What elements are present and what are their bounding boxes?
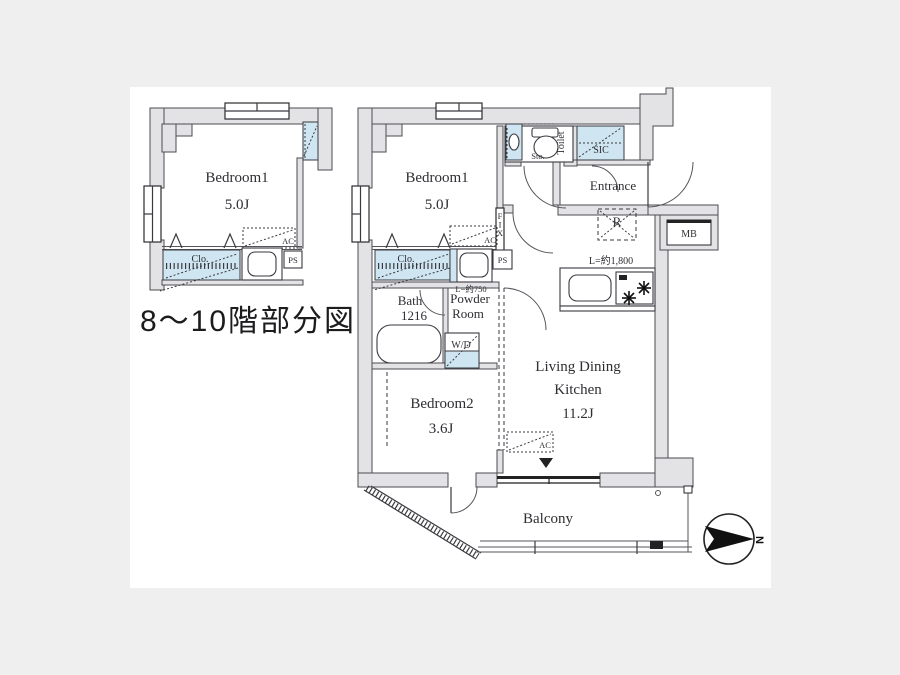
bath-size-label: 1216 [401, 308, 428, 323]
north-label: N [753, 536, 765, 544]
powder-label-1: Powder [450, 291, 490, 306]
left-plan-ps: PS [284, 251, 302, 268]
toilet-label: Toilet [556, 131, 567, 154]
main-ps-label: PS [498, 255, 508, 265]
bedroom2-label: Bedroom2 [410, 396, 473, 412]
refrigerator-label: R [613, 214, 622, 229]
main-window-top [436, 103, 482, 119]
main-bedroom1-label: Bedroom1 [405, 170, 468, 186]
mb-label: MB [681, 229, 697, 240]
washer-dryer: W/D [445, 333, 479, 368]
ldk-label-1: Living Dining [535, 359, 621, 375]
main-ac1-label: AC [484, 235, 496, 245]
left-ps-label: PS [288, 255, 298, 265]
bath-label: Bath [398, 293, 423, 308]
wd-label: W/D [451, 340, 470, 351]
balcony-label: Balcony [523, 511, 573, 527]
ldk-label-2: Kitchen [554, 382, 602, 398]
stove-burner-icon [622, 291, 636, 305]
powder-label-2: Room [452, 306, 484, 321]
floorplan-canvas: Clo. AC PS Bedroom1 5.0J 8～10階部分図 [0, 0, 900, 675]
stove-burner-icon [637, 281, 651, 295]
left-plan-window-top [225, 103, 289, 119]
bedroom2-size: 3.6J [429, 421, 454, 437]
left-bedroom1-label: Bedroom1 [205, 170, 268, 186]
ldk-size: 11.2J [562, 406, 594, 422]
main-ac2-label: AC [539, 440, 551, 450]
main-ps: PS [493, 250, 512, 269]
plan-title: 8～10階部分図 [140, 305, 356, 338]
left-plan-window-left [144, 186, 161, 242]
sic-label: SIC [593, 145, 609, 156]
entrance-label: Entrance [590, 178, 636, 193]
sto-label: Sto. [531, 151, 544, 161]
main-washbasin: L=約750 [450, 249, 492, 294]
left-closet-label: Clo. [192, 254, 209, 265]
left-ac-label: AC [282, 236, 294, 246]
meter-box: MB [660, 215, 718, 250]
main-closet-label: Clo. [398, 254, 415, 265]
main-fix-window: FIX [496, 208, 504, 252]
kitchen-length-label: L=約1,800 [589, 254, 633, 267]
left-plan-cut-fixture [303, 122, 318, 160]
main-bedroom1-size: 5.0J [425, 197, 450, 213]
left-bedroom1-size: 5.0J [225, 197, 250, 213]
sic-closet: SIC [577, 126, 624, 160]
left-plan-washbasin [242, 248, 282, 280]
main-window-left [352, 186, 369, 242]
